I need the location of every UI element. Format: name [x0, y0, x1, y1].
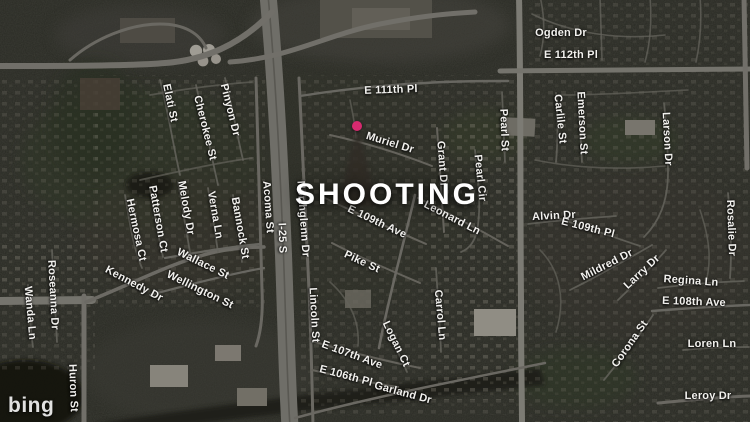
street-label: Acoma St	[260, 180, 276, 233]
street-label: E 111th Pl	[364, 83, 418, 97]
street-label: Pike St	[342, 249, 382, 276]
street-label: E 109th Pl	[560, 216, 616, 241]
street-label: Lincoln St	[307, 287, 322, 343]
bing-logo: bing	[8, 394, 54, 418]
street-label: Cherokee St	[191, 94, 219, 161]
street-label: Pinyon Dr	[218, 82, 243, 137]
news-map-graphic: Elati StCherokee StPinyon DrHermosa CtPa…	[0, 0, 750, 422]
street-label: Leroy Dr	[685, 390, 732, 402]
street-label: Bannock St	[229, 196, 252, 260]
street-label: Roseanna Dr	[45, 260, 61, 331]
street-label: Elati St	[160, 83, 180, 124]
street-label: Verna Ln	[205, 190, 225, 239]
street-label: Melody Dr	[175, 180, 196, 236]
street-label: Emerson St	[574, 91, 589, 155]
street-label: Ogden Dr	[535, 27, 587, 39]
street-label: Pearl St	[497, 109, 510, 152]
street-label: Garland Dr	[373, 380, 433, 407]
street-label: Loren Ln	[688, 338, 737, 350]
headline-shooting: SHOOTING	[295, 178, 479, 212]
street-label: Wanda Ln	[22, 286, 39, 341]
street-label: E 108th Ave	[662, 295, 726, 309]
street-label: Huron St	[66, 364, 80, 412]
street-label: I-25 S	[275, 223, 288, 254]
street-label: Patterson Ct	[146, 185, 170, 254]
street-label: Carlile St	[551, 94, 568, 145]
street-label: Larson Dr	[660, 112, 675, 166]
street-label: Kennedy Dr	[103, 264, 165, 305]
street-label: Hermosa Ct	[124, 198, 149, 263]
street-label: Regina Ln	[663, 273, 719, 289]
street-label: Corona St	[609, 318, 650, 369]
street-label: Carrol Ln	[432, 289, 448, 341]
street-label: Muriel Dr	[365, 130, 416, 156]
street-label: Rosalie Dr	[724, 200, 738, 257]
street-label: Logan Ct	[380, 319, 412, 369]
location-pin-icon	[352, 121, 362, 131]
street-label: E 106th Pl	[318, 363, 374, 389]
street-label: E 112th Pl	[544, 49, 598, 61]
